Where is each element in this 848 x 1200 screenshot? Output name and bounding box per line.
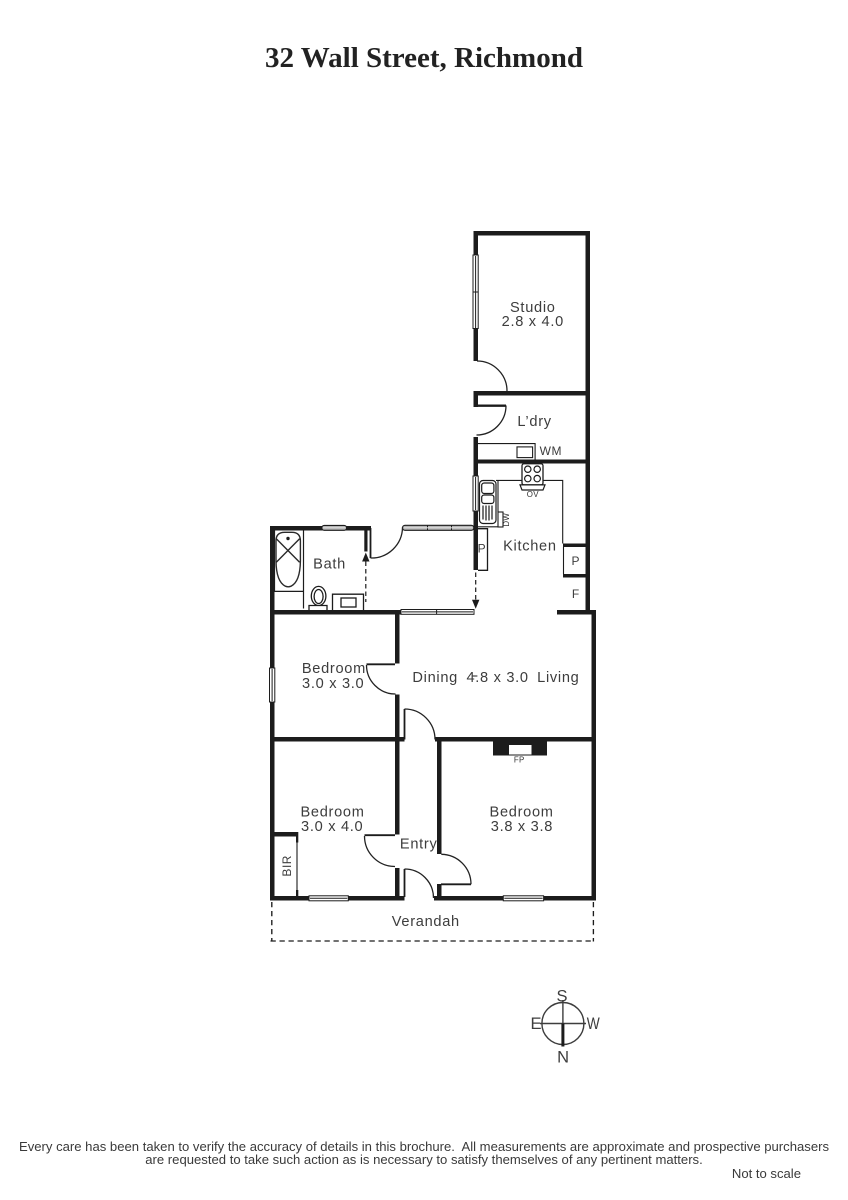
svg-text:Living: Living [537, 670, 579, 686]
svg-text:BIR: BIR [280, 855, 294, 877]
svg-text:3.0 x 4.0: 3.0 x 4.0 [301, 819, 363, 835]
svg-text:Bedroom: Bedroom [490, 805, 554, 821]
svg-text:Bedroom: Bedroom [300, 805, 364, 821]
svg-text:W: W [587, 1015, 600, 1033]
svg-text:2.8 x 4.0: 2.8 x 4.0 [502, 314, 564, 330]
svg-text:FP: FP [514, 756, 525, 765]
svg-text:WM: WM [540, 444, 562, 458]
svg-text:P: P [478, 542, 487, 556]
svg-text:S: S [556, 987, 567, 1005]
svg-text:Entry: Entry [400, 837, 438, 853]
svg-text:DW: DW [502, 513, 511, 527]
svg-text:L’dry: L’dry [517, 414, 551, 430]
svg-text:4.8 x 3.0: 4.8 x 3.0 [466, 670, 528, 686]
svg-text:3.8 x 3.8: 3.8 x 3.8 [491, 819, 553, 835]
svg-text:Dining: Dining [412, 670, 458, 686]
svg-text:N: N [557, 1049, 569, 1067]
svg-text:3.0 x 3.0: 3.0 x 3.0 [302, 676, 364, 692]
svg-text:Bedroom: Bedroom [302, 661, 366, 677]
svg-text:Verandah: Verandah [392, 914, 460, 930]
svg-text:F: F [572, 587, 580, 601]
svg-text:OV: OV [527, 490, 539, 499]
svg-text:Bath: Bath [313, 557, 346, 573]
svg-text:P: P [572, 554, 581, 568]
svg-text:Kitchen: Kitchen [503, 538, 557, 554]
svg-text:E: E [530, 1015, 541, 1033]
